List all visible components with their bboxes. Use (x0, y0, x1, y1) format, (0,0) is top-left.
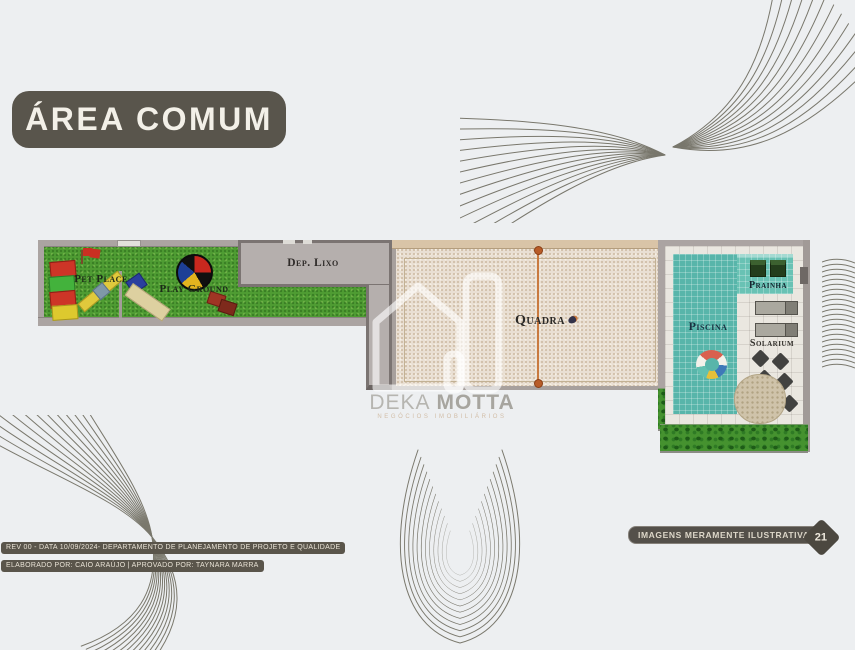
gate-opening (117, 240, 141, 247)
room-door-mark-2 (303, 240, 312, 244)
slide-page: ÁREA COMUM Pet Place Play Ground Dep. Li… (0, 0, 855, 650)
page-title: ÁREA COMUM (12, 91, 286, 148)
watermark-tagline: NEGÓCIOS IMOBILIÁRIOS (352, 414, 532, 420)
revision-line-2: ELABORADO POR: CAIO ARAÚJO | APROVADO PO… (1, 560, 264, 572)
swirl-top-right (460, 0, 855, 223)
plan-left-wall (38, 240, 44, 324)
label-dep-lixo: Dep. Lixo (258, 258, 368, 270)
label-prainha: Prainha (742, 281, 794, 291)
watermark-brand-first: DEKA (369, 391, 430, 414)
page-number-badge: 21 (802, 518, 840, 556)
swimming-pool (673, 254, 737, 414)
label-quadra: Quadra (505, 314, 575, 328)
label-solarium: Solarium (743, 339, 801, 349)
pool-left-wall (658, 240, 665, 392)
corridor (366, 285, 392, 390)
pool-zone: Prainha Solarium Piscina (658, 240, 810, 452)
float-ring-hole (705, 358, 719, 371)
net-post-top (534, 246, 543, 255)
swirl-bottom-left (0, 415, 630, 650)
label-play-ground: Play Ground (148, 284, 240, 295)
prainha-lounger-2 (770, 260, 786, 277)
plan-bottom-wall (38, 317, 392, 326)
garden-strip (660, 424, 808, 453)
pool-float-ring (696, 350, 727, 379)
sun-lounger-1 (755, 301, 798, 315)
page-title-text: ÁREA COMUM (25, 101, 273, 138)
watermark-brand-second: MOTTA (437, 391, 515, 414)
sun-lounger-2 (755, 323, 798, 337)
pool-wall-tab (800, 267, 808, 284)
label-pet-place: Pet Place (62, 274, 140, 285)
lounger-pillow (785, 302, 797, 314)
revision-block: REV 00 - DATA 10/09/2024- DEPARTAMENTO D… (1, 536, 345, 573)
pet-block-4 (52, 304, 79, 321)
disclaimer-pill: IMAGENS MERAMENTE ILUSTRATIVAS| (628, 526, 829, 544)
net-post-bottom (534, 379, 543, 388)
pet-red-cube (89, 248, 100, 258)
prainha-lounger-1 (750, 260, 766, 277)
page-number: 21 (815, 532, 827, 544)
room-door-mark-1 (283, 240, 295, 244)
pebble-circle (734, 374, 786, 424)
watermark-brand: DEKAMOTTA (362, 391, 522, 415)
label-piscina: Piscina (678, 320, 738, 332)
swirl-right-edge (822, 258, 855, 380)
lounger-pillow (785, 324, 797, 336)
revision-line-1: REV 00 - DATA 10/09/2024- DEPARTAMENTO D… (1, 542, 345, 554)
quadra-top-wall (392, 240, 665, 249)
